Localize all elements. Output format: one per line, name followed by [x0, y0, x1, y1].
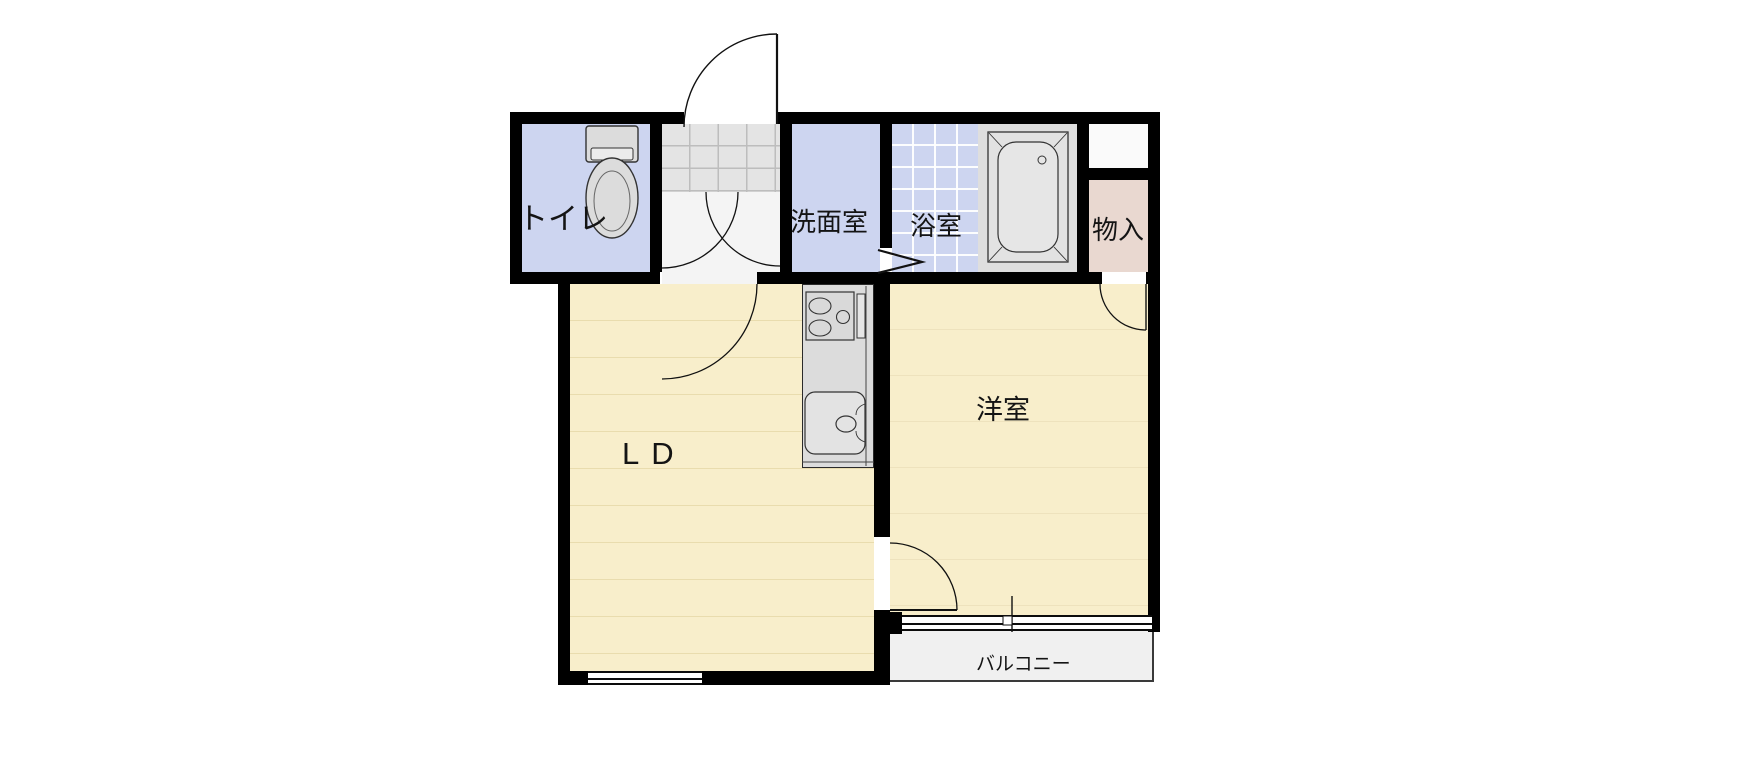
bathroom-folding-door — [878, 250, 922, 273]
floorplan-canvas: トイレ 洗面室 浴室 物入 LD 洋室 バルコニー — [0, 0, 1744, 763]
window-meeting-stile — [1003, 596, 1012, 632]
label-storage: 物入 — [1092, 210, 1144, 247]
fixtures-layer — [0, 0, 1744, 763]
toilet-door-arc — [662, 192, 738, 268]
label-bathroom: 浴室 — [910, 206, 962, 243]
storage-door — [1100, 284, 1146, 330]
western-room-door — [890, 543, 957, 610]
label-balcony: バルコニー — [976, 649, 1071, 676]
bathtub-icon — [988, 132, 1068, 262]
label-toilet: トイレ — [518, 194, 608, 238]
washroom-door-arc — [706, 192, 780, 266]
label-washroom: 洗面室 — [790, 202, 868, 239]
kitchen-sink-icon — [805, 392, 865, 454]
entrance-door — [684, 34, 777, 127]
ld-door-arc — [662, 284, 757, 379]
stove-icon — [806, 292, 865, 340]
label-living-dining: LD — [622, 436, 686, 472]
label-western-room: 洋室 — [976, 388, 1030, 427]
